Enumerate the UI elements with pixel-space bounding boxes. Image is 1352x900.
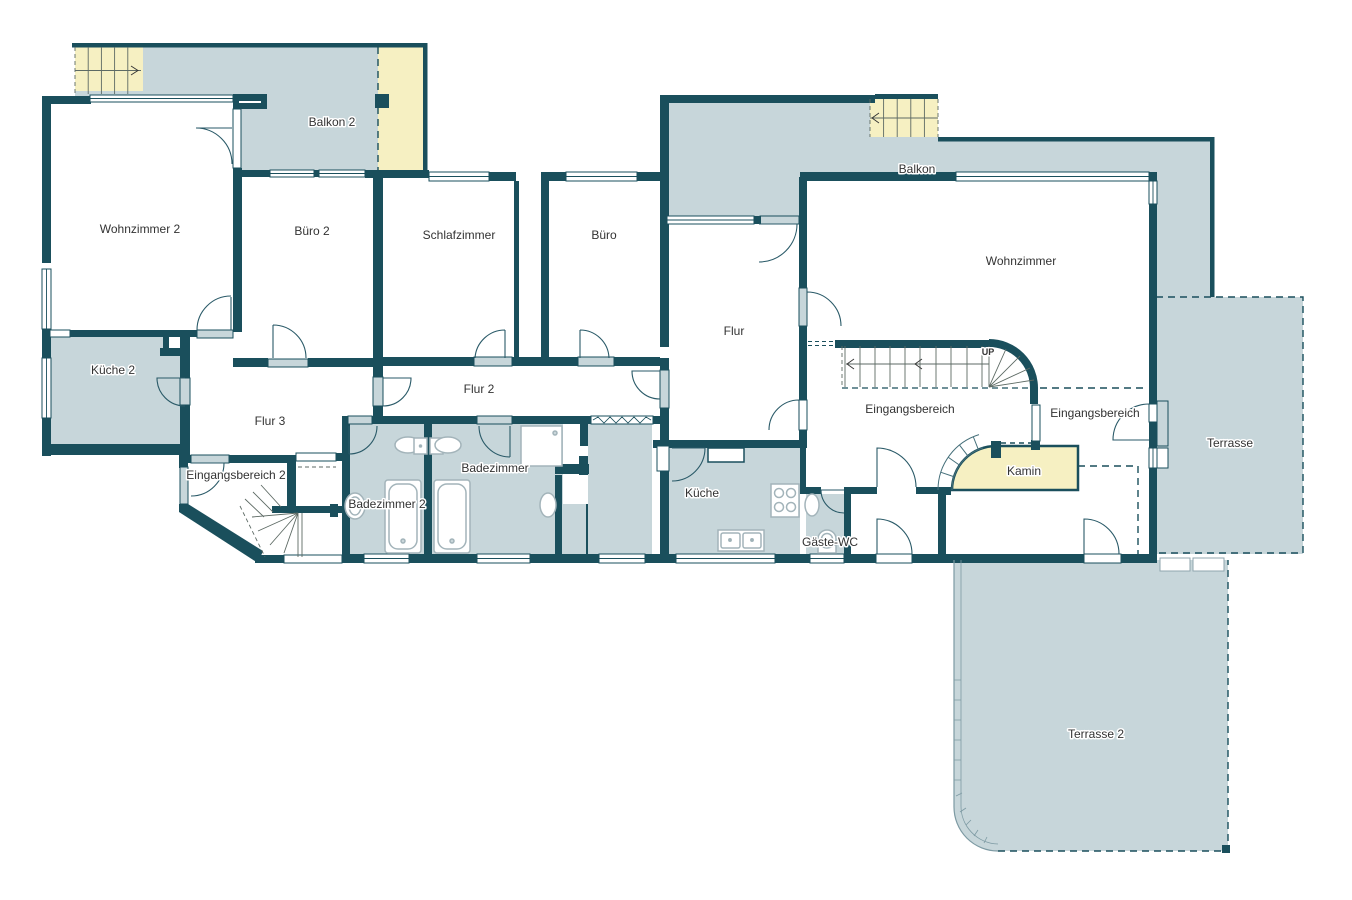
svg-text:Küche: Küche bbox=[685, 486, 719, 500]
svg-text:Gäste-WC: Gäste-WC bbox=[802, 535, 858, 549]
svg-text:UP: UP bbox=[982, 347, 995, 357]
svg-text:Wohnzimmer: Wohnzimmer bbox=[986, 254, 1056, 268]
svg-text:Büro: Büro bbox=[591, 228, 617, 242]
svg-text:Badezimmer 2: Badezimmer 2 bbox=[348, 497, 426, 511]
svg-text:Terrasse 2: Terrasse 2 bbox=[1068, 727, 1124, 741]
svg-text:Flur: Flur bbox=[724, 324, 745, 338]
svg-text:Wohnzimmer 2: Wohnzimmer 2 bbox=[100, 222, 181, 236]
svg-text:Terrasse: Terrasse bbox=[1207, 436, 1253, 450]
svg-text:Badezimmer: Badezimmer bbox=[461, 461, 528, 475]
svg-text:Flur 3: Flur 3 bbox=[255, 414, 286, 428]
svg-text:Schlafzimmer: Schlafzimmer bbox=[423, 228, 496, 242]
svg-text:Kamin: Kamin bbox=[1007, 464, 1041, 478]
svg-text:Küche 2: Küche 2 bbox=[91, 363, 135, 377]
svg-text:Balkon: Balkon bbox=[899, 162, 936, 176]
svg-text:Büro 2: Büro 2 bbox=[294, 224, 330, 238]
svg-text:Flur 2: Flur 2 bbox=[464, 382, 495, 396]
svg-text:Eingangsbereich: Eingangsbereich bbox=[1050, 406, 1139, 420]
svg-text:Balkon 2: Balkon 2 bbox=[309, 115, 356, 129]
svg-text:Eingangsbereich 2: Eingangsbereich 2 bbox=[186, 468, 286, 482]
svg-text:Eingangsbereich: Eingangsbereich bbox=[865, 402, 954, 416]
